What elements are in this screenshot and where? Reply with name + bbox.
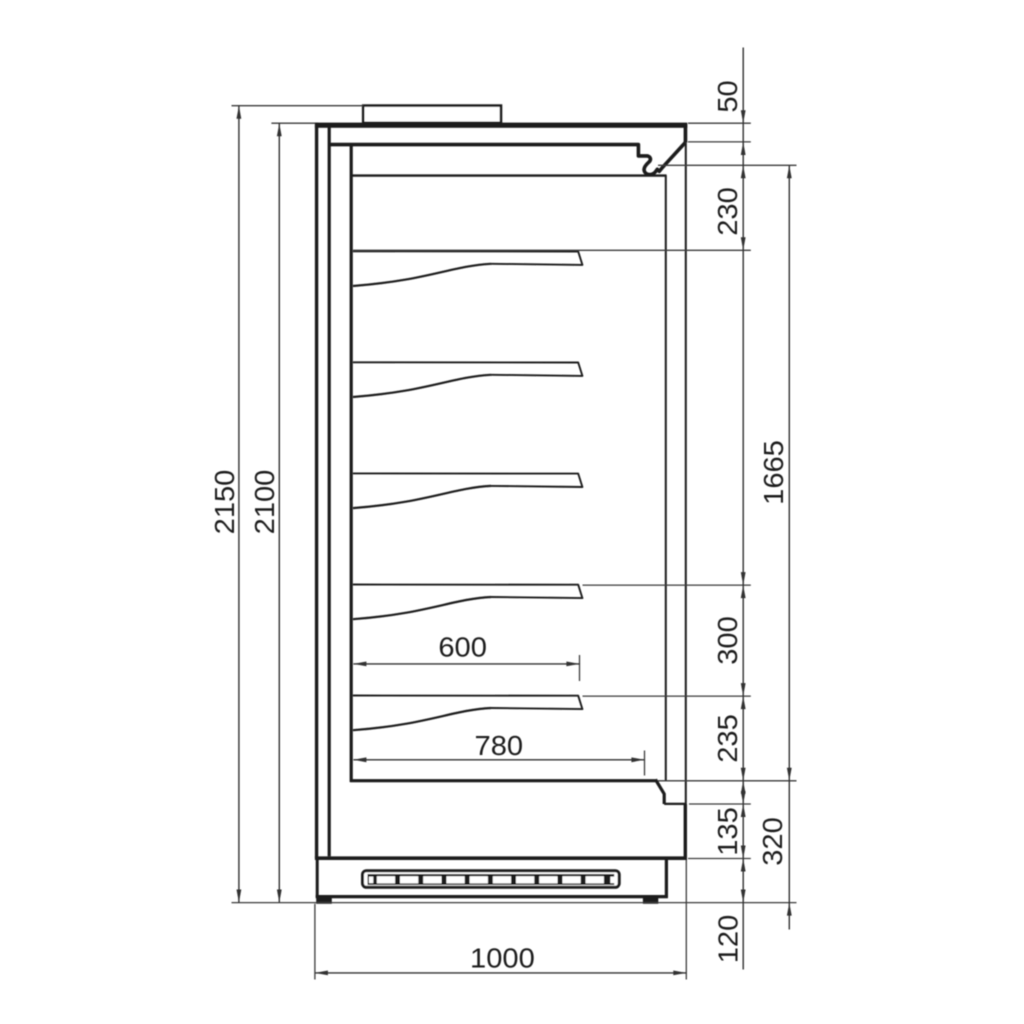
svg-text:120: 120 [713,915,744,964]
svg-text:135: 135 [712,807,743,856]
svg-text:320: 320 [758,817,789,866]
svg-text:2100: 2100 [249,470,280,535]
svg-text:50: 50 [712,80,743,112]
svg-text:300: 300 [712,616,743,665]
svg-text:1665: 1665 [759,440,790,505]
svg-text:230: 230 [712,187,743,236]
svg-text:1000: 1000 [470,943,535,974]
svg-text:2150: 2150 [209,470,240,535]
svg-text:235: 235 [712,714,743,763]
svg-text:780: 780 [475,730,524,761]
svg-text:600: 600 [438,632,487,663]
